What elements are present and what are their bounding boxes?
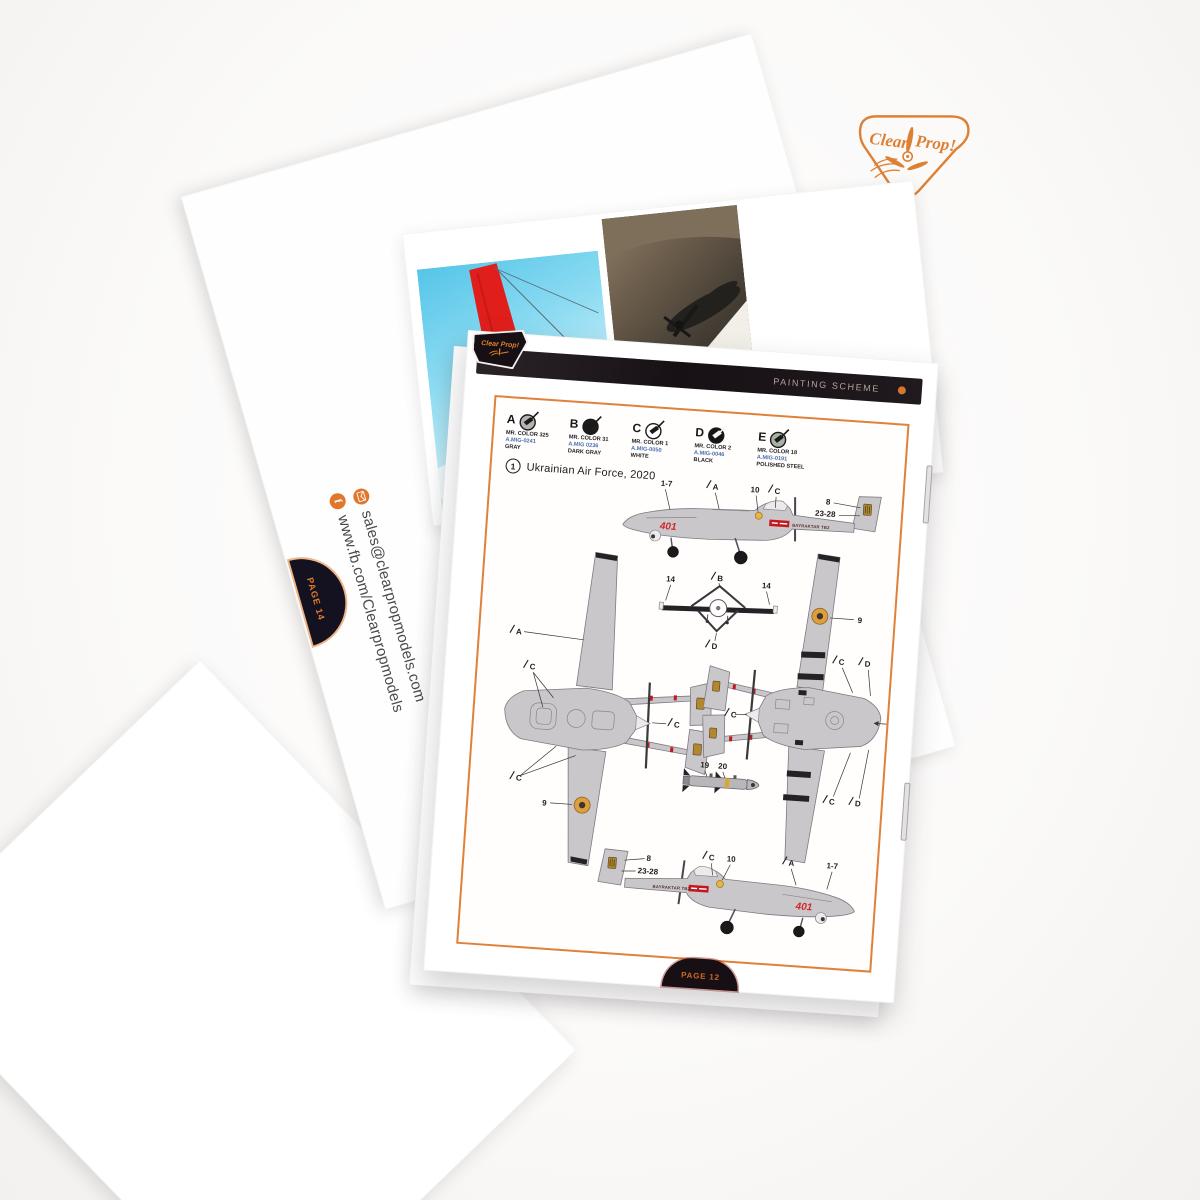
diagram-munition: 19 20 <box>672 756 775 805</box>
tail-number-marking: 401 <box>794 901 813 913</box>
header-orange-dot-icon <box>898 386 907 395</box>
callout-label: 9 <box>542 798 548 807</box>
tail-number-marking: 401 <box>658 521 677 533</box>
callout-label: 19 <box>700 760 710 770</box>
callout-label: A <box>788 859 795 868</box>
callout-label: 23-28 <box>637 866 659 876</box>
staple-icon <box>923 465 933 523</box>
callout-label: C <box>838 658 845 667</box>
paint-brush-icon <box>705 422 728 445</box>
legend-item-b: B MR. COLOR 31 A.MIG 0236 DARK GRAY <box>568 412 627 459</box>
page-12-label: PAGE 12 <box>681 970 720 982</box>
legend-letter: C <box>632 421 642 436</box>
scheme-number-circle: 1 <box>505 458 521 474</box>
callout-label: 8 <box>646 854 652 863</box>
callout-label: 8 <box>826 497 832 506</box>
legend-item-d: D MR. COLOR 2 A.MIG-0046 BLACK <box>693 421 752 468</box>
callout-label: 10 <box>726 854 736 864</box>
callout-label: C <box>708 853 715 862</box>
callout-label: 23-28 <box>815 509 837 519</box>
email-icon <box>352 486 372 506</box>
logo-word-clear: Clear <box>868 129 909 153</box>
product-photo-stage: Clear Prop! sales@clearpropmodels.com <box>0 0 1200 1200</box>
paint-brush-icon <box>642 417 665 440</box>
callout-label: D <box>855 799 862 808</box>
paint-brush-icon <box>768 426 791 449</box>
facebook-icon: f <box>328 491 348 511</box>
callout-label: 9 <box>857 616 863 625</box>
callout-label: 1-7 <box>826 861 839 871</box>
callout-label: C <box>730 710 737 719</box>
paint-brush-icon <box>517 409 540 432</box>
callout-label: C <box>774 487 781 496</box>
callout-label: A <box>712 482 719 491</box>
callout-label: 1-7 <box>660 479 673 489</box>
callout-label: C <box>829 797 836 806</box>
callout-label: 10 <box>750 485 760 495</box>
badge-propeller-icon <box>486 347 512 357</box>
callout-label: 20 <box>718 762 728 772</box>
legend-letter: A <box>506 412 516 427</box>
legend-item-e: E MR. COLOR 18 A.MIG-0191 POLISHED STEEL <box>756 426 815 473</box>
legend-item-a: A MR. COLOR 325 A.MIG-0241 GRAY <box>505 408 564 455</box>
callout-label: 14 <box>666 574 676 584</box>
callout-label: A <box>516 627 523 636</box>
page-section-title: PAINTING SCHEME <box>773 376 880 393</box>
legend-letter: D <box>695 425 705 440</box>
page-14-label: PAGE 14 <box>305 576 327 621</box>
diagram-side-view-starboard: BAYRAKTAR TB2 401 8 23-28 C 10 A 1-7 <box>587 841 867 958</box>
header-bar: PAINTING SCHEME <box>476 348 923 405</box>
callout-label: D <box>864 659 871 668</box>
legend-letter: E <box>758 430 767 445</box>
diagram-bottom-view: 9 C D C D C <box>691 545 899 889</box>
paint-brush-icon <box>580 413 603 436</box>
logo-word-prop: Prop! <box>913 131 957 155</box>
instruction-booklet-page: PAINTING SCHEME Clear Prop! <box>423 330 939 1003</box>
painting-scheme-panel: A MR. COLOR 325 A.MIG-0241 GRAY B <box>456 395 909 973</box>
legend-letter: B <box>569 416 579 431</box>
legend-item-c: C MR. COLOR 1 A.MIG-0050 WHITE <box>630 417 689 464</box>
callout-label: C <box>529 662 536 671</box>
staple-icon <box>900 783 910 841</box>
callout-label: C <box>674 720 681 729</box>
